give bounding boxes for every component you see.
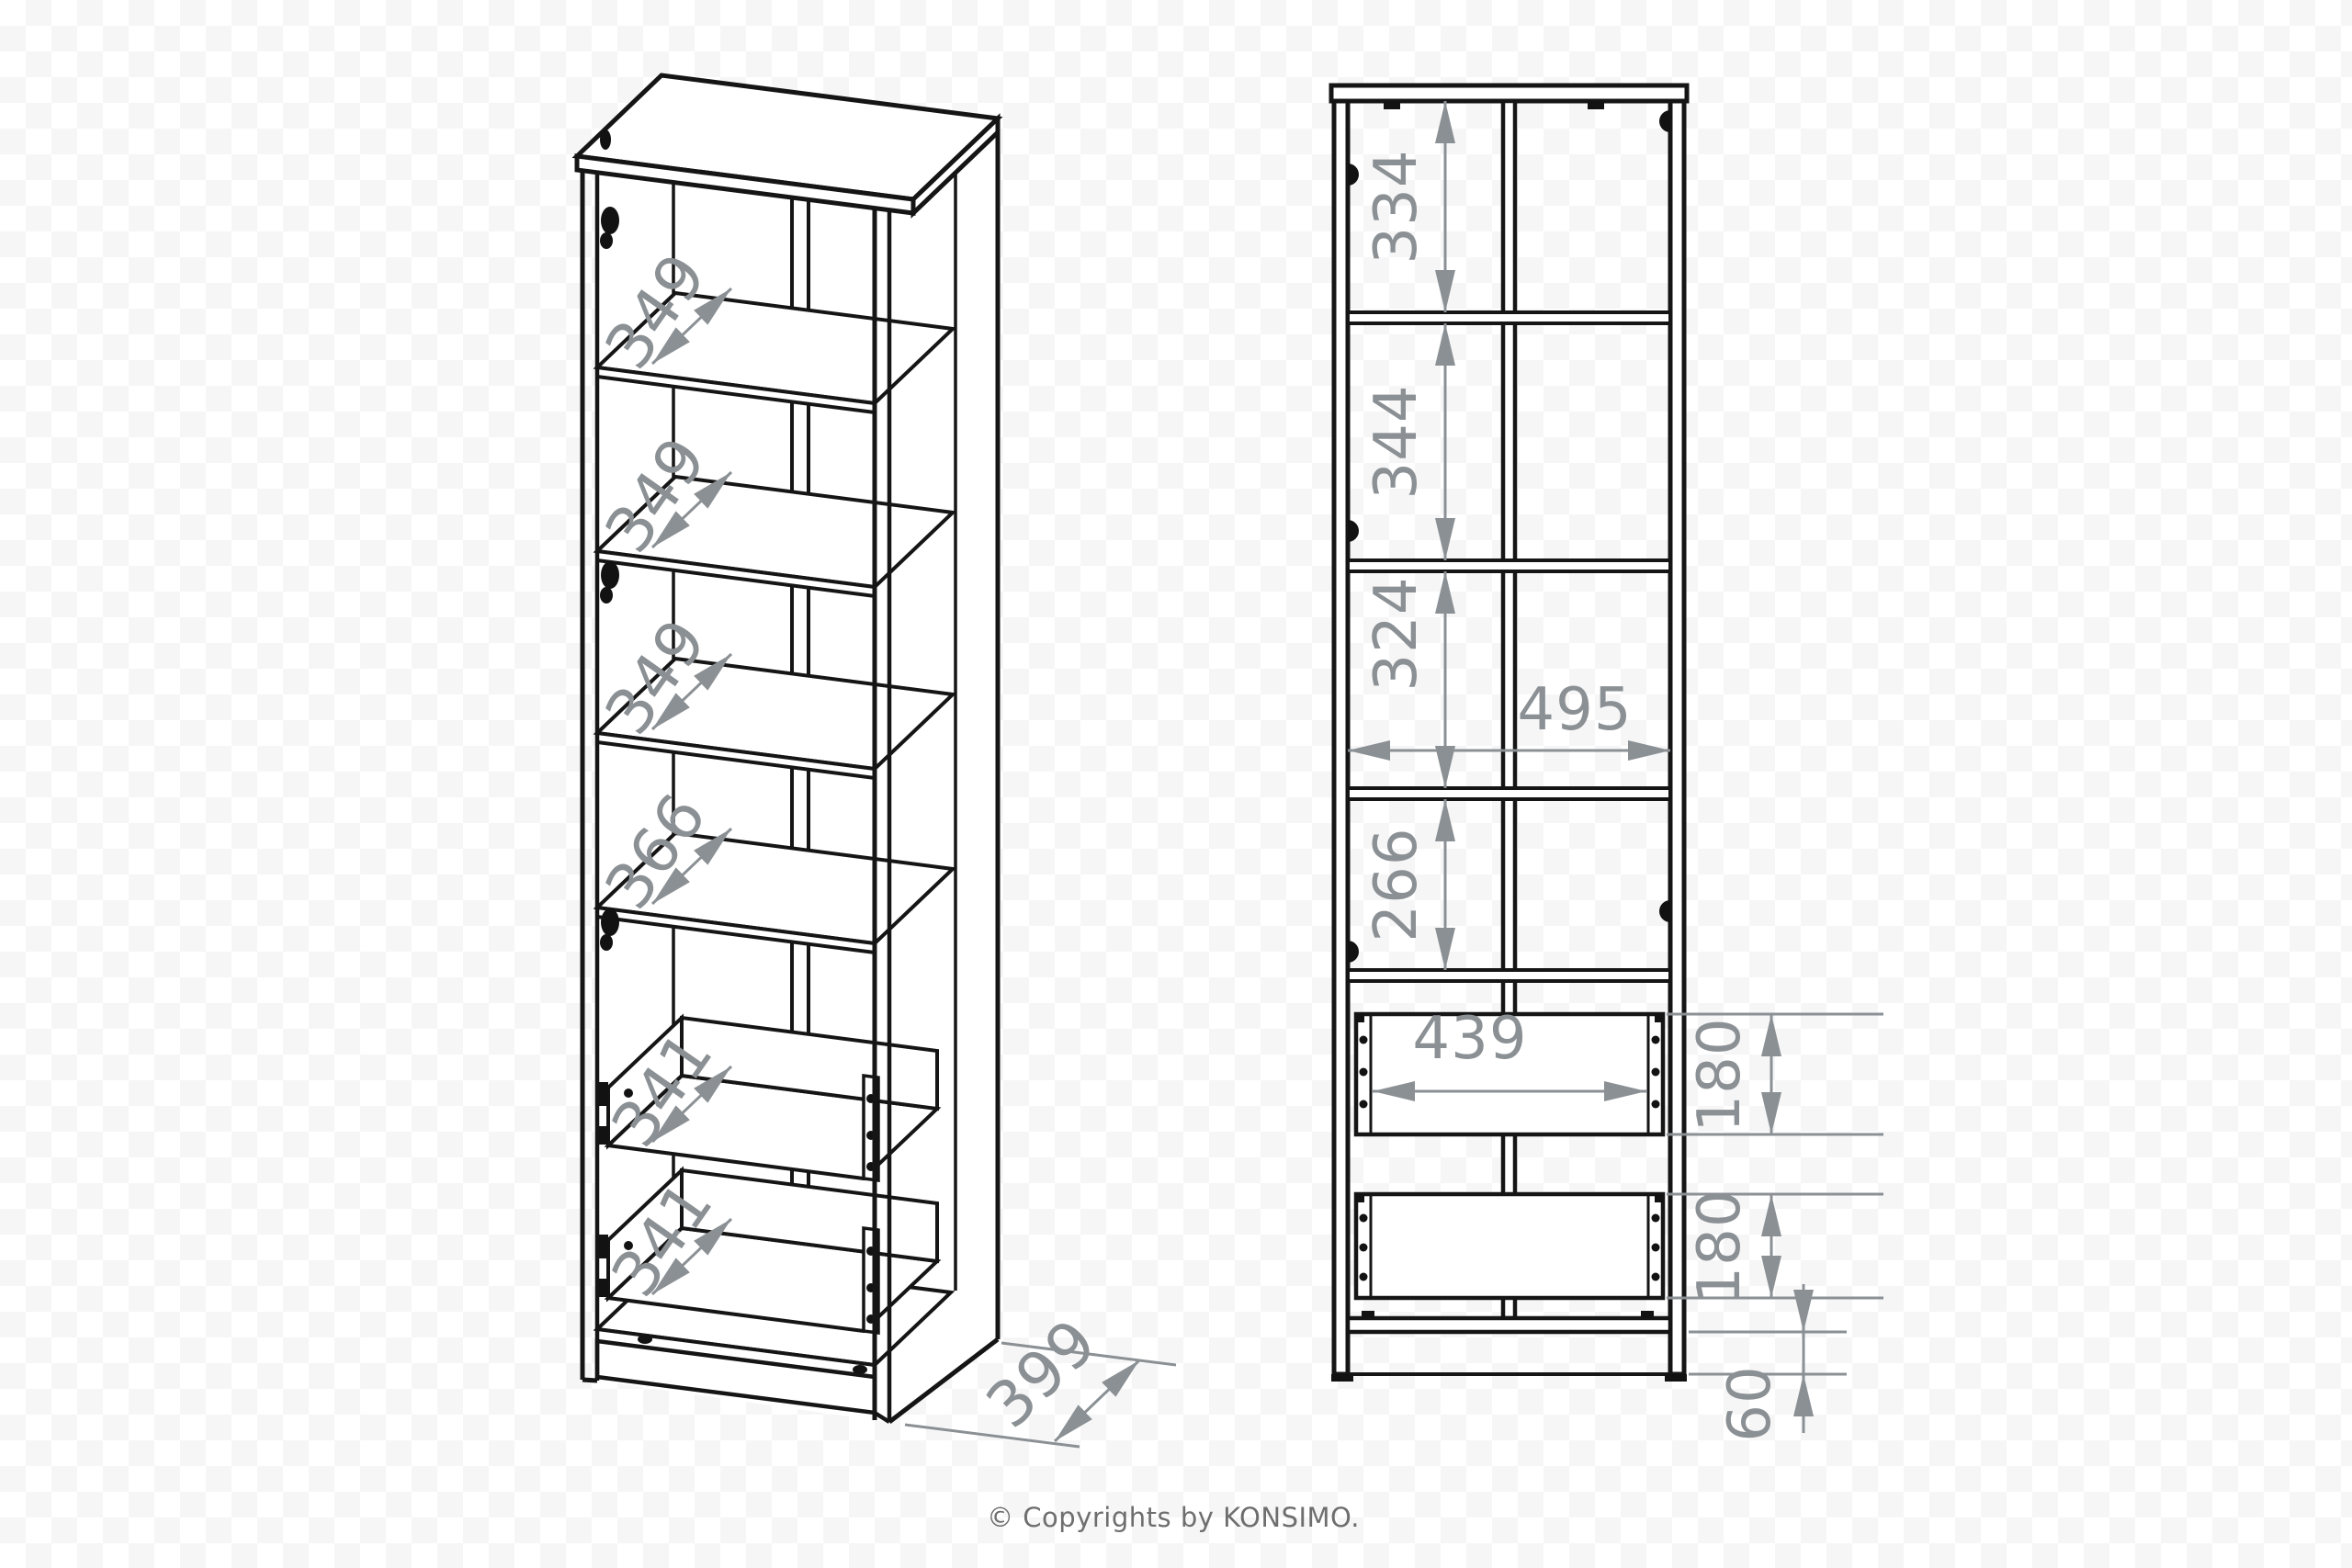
diagram-canvas: 349 349 349 366 341 341 399 [0, 0, 2352, 1568]
front-section-dimensions: 334 344 324 266 [1363, 101, 1445, 970]
dim-section-2: 344 [1363, 384, 1430, 499]
front-plinth-dimension: 60 [1689, 1284, 1847, 1442]
dim-section-3: 324 [1363, 576, 1430, 691]
front-drawer-height-dimensions: 180 180 [1667, 1014, 1883, 1304]
dim-section-4: 266 [1363, 827, 1430, 942]
copyright-text: © Copyrights by KONSIMO. [987, 1502, 1360, 1533]
perspective-view: 349 349 349 366 341 341 399 [577, 75, 1176, 1447]
dim-plinth-height: 60 [1716, 1365, 1784, 1441]
dim-section-1: 334 [1363, 149, 1430, 264]
furniture-dimension-diagram: 349 349 349 366 341 341 399 [0, 0, 2352, 1568]
dim-drawer-width: 439 [1412, 1005, 1527, 1073]
dim-inner-width: 495 [1517, 676, 1632, 744]
dim-drawer-1-height: 180 [1686, 1017, 1754, 1132]
front-drawer-2 [1356, 1194, 1663, 1318]
dim-drawer-2-height: 180 [1686, 1189, 1754, 1303]
front-carcass [1331, 85, 1687, 1382]
front-view: 334 344 324 266 495 439 180 180 [1331, 85, 1883, 1442]
